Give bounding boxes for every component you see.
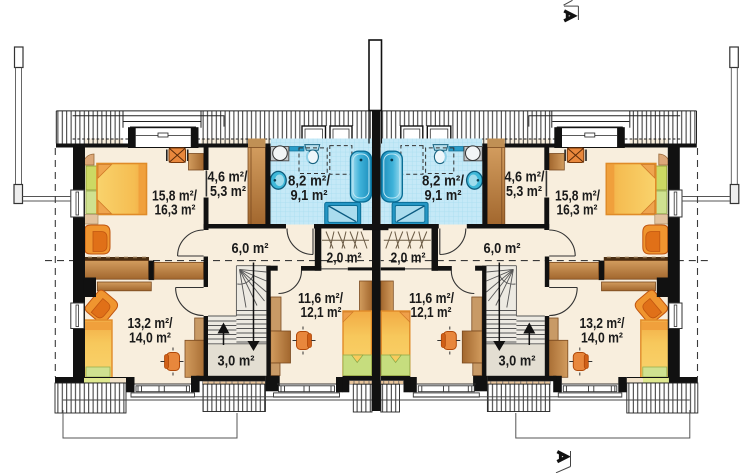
svg-text:6,0 m²: 6,0 m² bbox=[484, 241, 521, 257]
svg-text:6,0 m²: 6,0 m² bbox=[232, 241, 269, 257]
svg-text:9,1 m²: 9,1 m² bbox=[425, 188, 462, 204]
svg-text:14,0 m²: 14,0 m² bbox=[129, 331, 171, 347]
svg-text:3,0 m²: 3,0 m² bbox=[218, 354, 255, 370]
svg-text:16,3 m²: 16,3 m² bbox=[155, 203, 196, 219]
svg-text:8,2 m²/: 8,2 m²/ bbox=[422, 173, 464, 189]
svg-text:5,3 m²: 5,3 m² bbox=[506, 184, 542, 200]
svg-text:12,1 m²: 12,1 m² bbox=[411, 305, 452, 321]
svg-text:16,3 m²: 16,3 m² bbox=[557, 203, 598, 219]
svg-text:2,0 m²: 2,0 m² bbox=[391, 251, 426, 267]
svg-text:12,1 m²: 12,1 m² bbox=[301, 305, 342, 321]
svg-text:5,3 m²: 5,3 m² bbox=[210, 184, 246, 200]
svg-text:8,2 m²/: 8,2 m²/ bbox=[288, 173, 330, 189]
svg-text:9,1 m²: 9,1 m² bbox=[291, 188, 328, 204]
svg-text:2,0 m²: 2,0 m² bbox=[327, 251, 362, 267]
svg-text:3,0 m²: 3,0 m² bbox=[499, 354, 536, 370]
svg-text:14,0 m²: 14,0 m² bbox=[581, 331, 623, 347]
